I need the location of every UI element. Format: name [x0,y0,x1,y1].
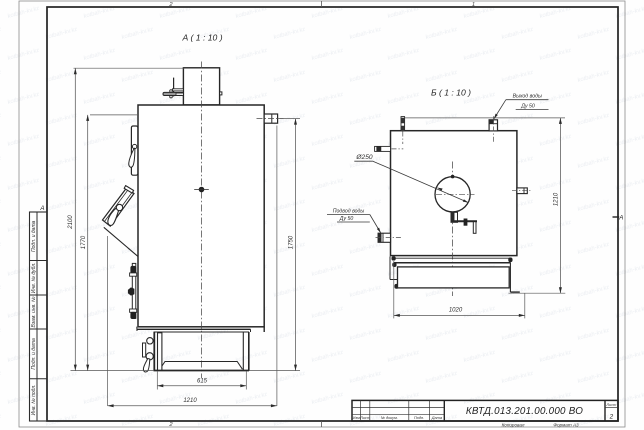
svg-text:Инв. № подл.: Инв. № подл. [31,384,37,415]
svg-text:Подп.: Подп. [414,415,424,420]
svg-text:Лист: Лист [605,402,617,407]
svg-text:№ докум.: № докум. [381,415,398,420]
svg-text:А ( 1 : 10 ): А ( 1 : 10 ) [181,33,222,43]
svg-text:1750: 1750 [288,235,294,249]
svg-text:А: А [39,205,44,212]
svg-text:2100: 2100 [68,215,74,230]
svg-text:КВТД.013.201.00.000 ВО: КВТД.013.201.00.000 ВО [466,406,583,417]
svg-text:Ду 50: Ду 50 [339,216,354,222]
svg-text:2: 2 [609,413,614,420]
svg-text:Изм: Изм [353,415,361,420]
svg-text:1210: 1210 [553,192,559,206]
svg-text:Лист: Лист [359,415,371,420]
svg-text:Инв. № дубл.: Инв. № дубл. [31,262,37,293]
svg-text:Ду 50: Ду 50 [520,104,535,110]
svg-text:615: 615 [197,378,208,384]
svg-text:1770: 1770 [81,235,87,249]
svg-text:Дата: Дата [431,415,443,420]
svg-text:1020: 1020 [449,308,463,314]
svg-text:Ø250: Ø250 [355,154,372,161]
svg-text:1210: 1210 [183,398,197,404]
svg-text:1: 1 [472,2,475,8]
svg-text:Копировал: Копировал [502,422,525,427]
svg-text:Формат А3: Формат А3 [553,422,579,427]
svg-text:Б ( 1 : 10 ): Б ( 1 : 10 ) [431,87,471,97]
svg-text:Подп. и дата: Подп. и дата [31,338,37,370]
svg-text:Подвод воды: Подвод воды [333,208,365,214]
svg-text:А: А [618,214,623,221]
svg-text:Подп. и дата: Подп. и дата [31,220,37,252]
svg-text:Выход воды: Выход воды [513,94,542,100]
svg-text:Взам. инв. №: Взам. инв. № [31,296,37,328]
